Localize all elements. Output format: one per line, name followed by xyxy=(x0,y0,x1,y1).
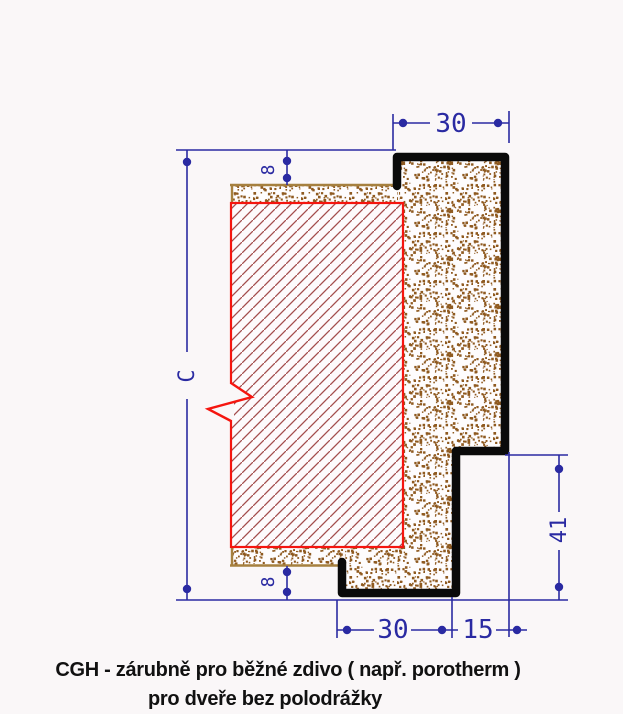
dim-label-frame-depth: 41 xyxy=(547,517,572,544)
masonry-hatch-area xyxy=(231,203,403,547)
dot-8-top-b xyxy=(283,174,291,182)
dim-label-bottom-width: 30 xyxy=(377,615,408,645)
dim-label-top-plaster-offset: 8 xyxy=(258,165,279,176)
bottom-mortar-strip xyxy=(230,547,343,566)
technical-drawing-page: 30 8 C 41 8 30 15 CGH - zárubně pro běžn… xyxy=(0,0,623,714)
dot-8-bottom-b xyxy=(283,588,291,596)
dot-41-top xyxy=(555,465,563,473)
dot-8-bottom-a xyxy=(283,568,291,576)
caption-line-1: CGH - zárubně pro běžné zdivo ( např. po… xyxy=(55,659,520,681)
dot-30-bottom-right xyxy=(438,626,446,634)
dot-8-top-a xyxy=(283,157,291,165)
dot-15-bottom-right xyxy=(513,626,521,634)
door-frame-section-drawing: 30 8 C 41 8 30 15 CGH - zárubně pro běžn… xyxy=(0,0,623,714)
dot-30-bottom-left xyxy=(343,626,351,634)
dot-30-top-left xyxy=(399,119,407,127)
dot-c-top xyxy=(183,158,191,166)
dim-label-bottom-lip: 15 xyxy=(462,615,493,645)
dot-41-bottom xyxy=(555,583,563,591)
dot-30-top-right xyxy=(494,119,502,127)
dot-c-bottom xyxy=(183,585,191,593)
masonry-wall-section xyxy=(208,203,403,547)
caption-line-2: pro dveře bez polodrážky xyxy=(148,688,383,710)
dim-label-opening-height: C xyxy=(175,369,200,382)
top-mortar-strip xyxy=(230,184,398,203)
dim-label-top-width: 30 xyxy=(435,109,466,139)
dim-label-bottom-plaster-offset: 8 xyxy=(258,577,279,588)
